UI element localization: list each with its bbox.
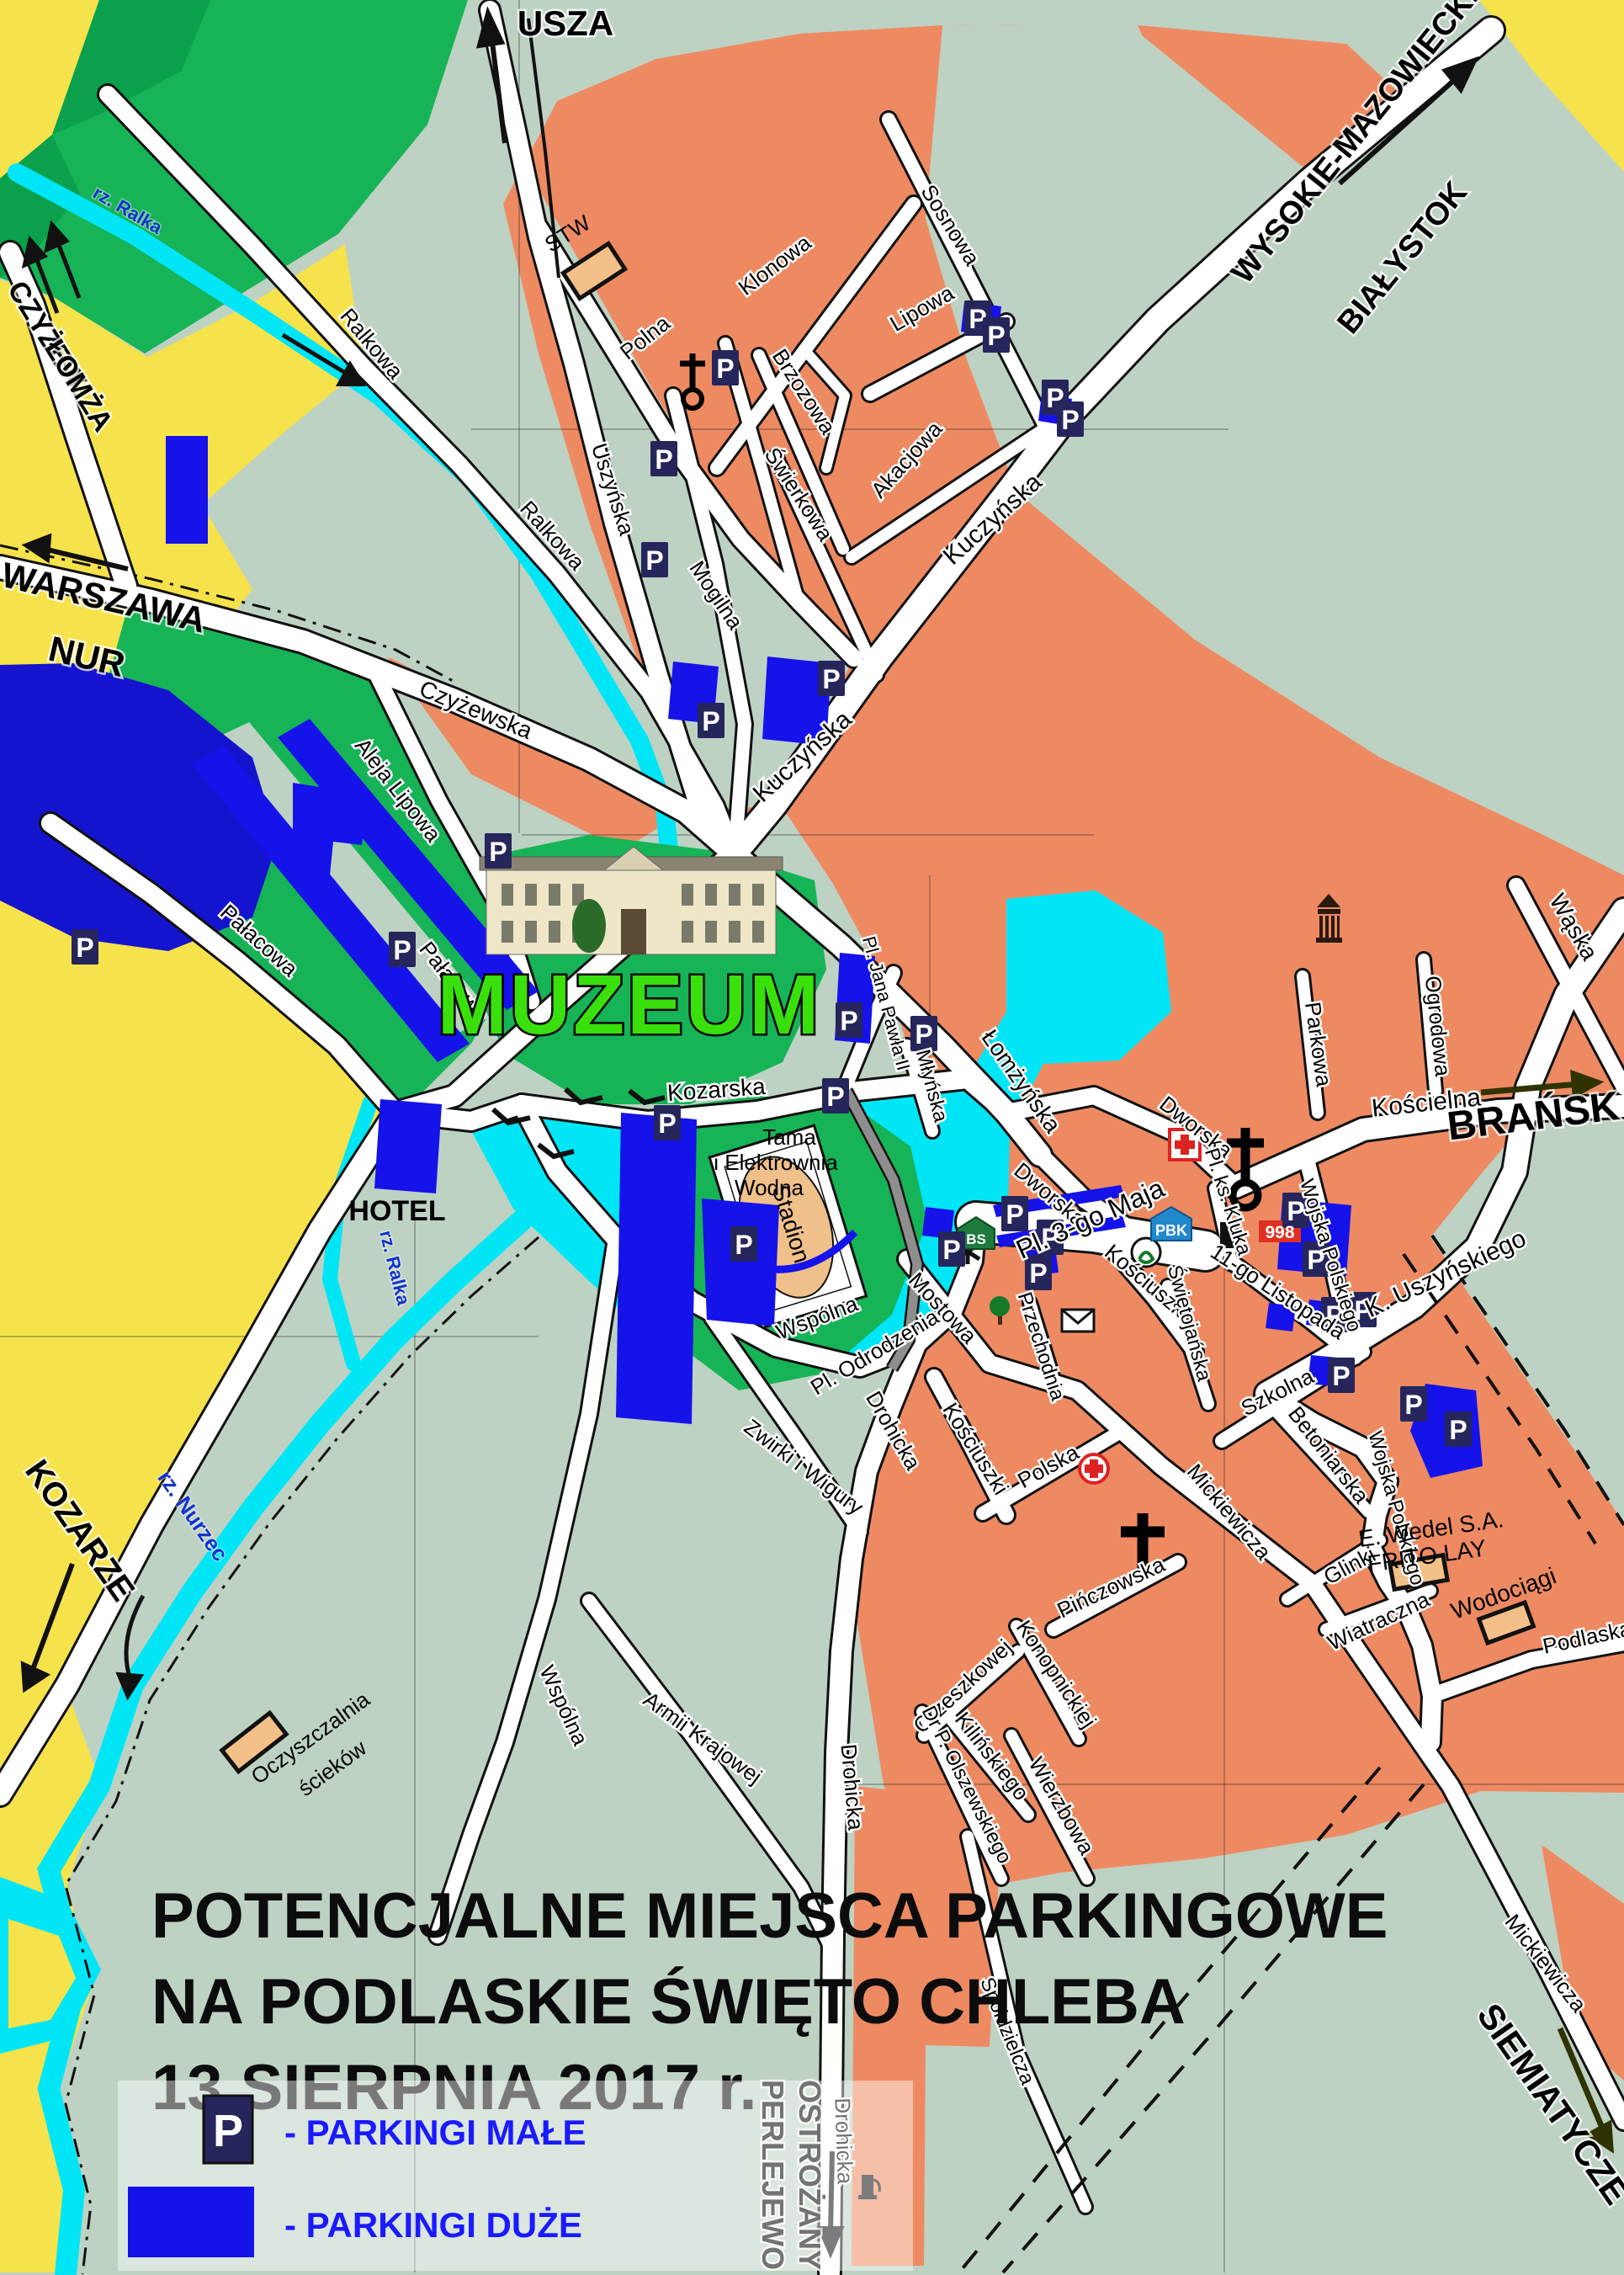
hotel-label: HOTEL bbox=[348, 1195, 445, 1227]
small-parking-marker: P bbox=[72, 929, 98, 965]
svg-text:P: P bbox=[702, 706, 719, 736]
large-parking-area bbox=[166, 436, 208, 544]
small-parking-marker: P bbox=[485, 833, 512, 869]
small-parking-marker: P bbox=[938, 1231, 965, 1267]
svg-text:P: P bbox=[822, 664, 840, 694]
town-parking-map: PPPPPPPPPPPPPPPPPPPPPPPPPPPP RalkowaRalk… bbox=[0, 0, 1624, 2275]
svg-text:P: P bbox=[645, 545, 663, 576]
large-parking-area bbox=[616, 1113, 697, 1424]
svg-text:P: P bbox=[1404, 1390, 1422, 1420]
small-parking-marker: P bbox=[698, 703, 724, 738]
svg-text:P: P bbox=[76, 933, 93, 963]
svg-text:P: P bbox=[1332, 1361, 1350, 1391]
small-parking-marker: P bbox=[650, 441, 677, 476]
tree-at-museum bbox=[572, 899, 606, 953]
small-parking-marker: P bbox=[983, 317, 1010, 353]
museum-building-photo bbox=[480, 847, 783, 954]
svg-text:P: P bbox=[826, 1082, 844, 1112]
legend-large-parking-label: - PARKINGI DUŻE bbox=[284, 2205, 582, 2245]
tama-label-2: i Elektrownia bbox=[714, 1150, 838, 1175]
small-parking-marker: P bbox=[1400, 1386, 1427, 1422]
tama-label-1: Tama bbox=[762, 1124, 816, 1150]
tama-label-3: Wodna bbox=[735, 1175, 804, 1200]
legend: P - PARKINGI MAŁE - PARKINGI DUŻE bbox=[118, 2081, 913, 2271]
small-parking-marker: P bbox=[730, 1226, 757, 1262]
small-parking-marker: P bbox=[1057, 401, 1084, 437]
svg-text:P: P bbox=[735, 1230, 752, 1260]
svg-text:P: P bbox=[393, 935, 411, 965]
post-office-icon bbox=[1062, 1310, 1094, 1332]
small-parking-marker: P bbox=[389, 932, 416, 967]
svg-text:P: P bbox=[1029, 1258, 1047, 1289]
small-parking-marker: P bbox=[836, 1002, 862, 1038]
muzeum-label: MUZEUM bbox=[438, 958, 822, 1052]
small-parking-marker: P bbox=[654, 1105, 681, 1140]
svg-text:P: P bbox=[915, 1019, 932, 1050]
large-parking-area bbox=[374, 1099, 442, 1193]
svg-text:P: P bbox=[213, 2106, 243, 2156]
legend-large-parking-icon bbox=[128, 2187, 254, 2257]
straz-998-label: 998 bbox=[1265, 1223, 1294, 1242]
small-parking-marker: P bbox=[1328, 1358, 1355, 1393]
small-parking-marker: P bbox=[818, 661, 845, 696]
svg-text:P: P bbox=[1449, 1415, 1467, 1445]
small-parking-marker: P bbox=[641, 542, 668, 577]
svg-text:P: P bbox=[1061, 405, 1079, 435]
small-parking-marker: P bbox=[822, 1078, 849, 1114]
svg-text:P: P bbox=[658, 1108, 676, 1139]
svg-text:P: P bbox=[655, 444, 672, 475]
small-parking-marker: P bbox=[1001, 1196, 1028, 1231]
svg-text:P: P bbox=[840, 1006, 857, 1036]
svg-text:P: P bbox=[489, 837, 507, 867]
svg-text:P: P bbox=[942, 1235, 960, 1265]
small-parking-marker: P bbox=[712, 350, 739, 385]
svg-text:P: P bbox=[987, 321, 1005, 351]
small-parking-marker: P bbox=[910, 1016, 937, 1051]
svg-text:P: P bbox=[716, 353, 734, 384]
legend-small-parking-icon: P bbox=[204, 2096, 252, 2163]
red-cross-circle-icon bbox=[1080, 1454, 1108, 1483]
pbk-sign-label: PBK bbox=[1155, 1222, 1187, 1239]
title-line-2: NA PODLASKIE ŚWIĘTO CHLEBA bbox=[151, 1966, 1186, 2038]
title-line-1: POTENCJALNE MIEJSCA PARKINGOWE bbox=[151, 1880, 1388, 1952]
small-parking-marker: P bbox=[1445, 1411, 1472, 1447]
bs-sign-label: BS bbox=[966, 1231, 986, 1247]
destination-label: USZA bbox=[517, 3, 613, 43]
legend-small-parking-label: - PARKINGI MAŁE bbox=[284, 2113, 586, 2152]
parking-map-page: PPPPPPPPPPPPPPPPPPPPPPPPPPPP RalkowaRalk… bbox=[0, 0, 1624, 2275]
svg-text:P: P bbox=[1006, 1199, 1023, 1230]
